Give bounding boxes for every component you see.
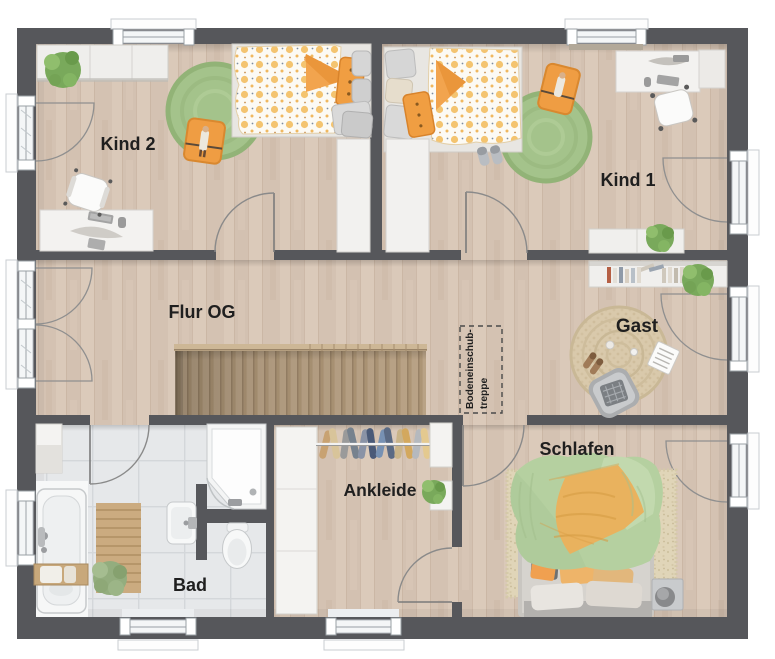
svg-text:Bad: Bad [173,575,207,595]
svg-text:Schlafen: Schlafen [539,439,614,459]
svg-text:Flur OG: Flur OG [169,302,236,322]
svg-text:Kind 2: Kind 2 [100,134,155,154]
svg-text:Gast: Gast [616,316,659,337]
svg-text:treppe: treppe [479,378,490,409]
svg-text:Bodeneinschub-: Bodeneinschub- [465,329,476,409]
svg-text:Kind 1: Kind 1 [600,170,655,190]
svg-text:Ankleide: Ankleide [344,480,417,500]
